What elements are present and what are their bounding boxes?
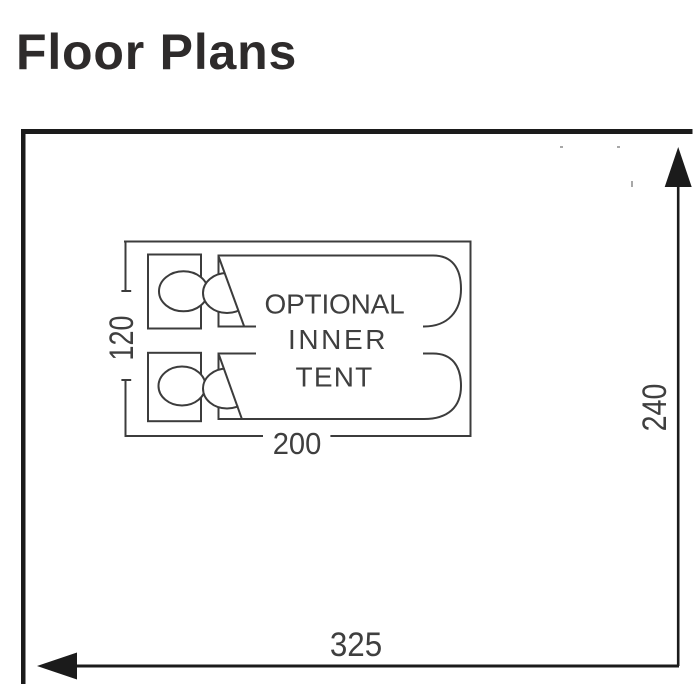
svg-text:Floor Plans: Floor Plans bbox=[16, 24, 297, 80]
svg-text:INNER: INNER bbox=[288, 324, 388, 355]
svg-text:TENT: TENT bbox=[296, 362, 374, 393]
svg-text:240: 240 bbox=[634, 384, 673, 432]
svg-text:OPTIONAL: OPTIONAL bbox=[265, 289, 405, 320]
svg-text:325: 325 bbox=[330, 625, 382, 664]
svg-text:120: 120 bbox=[102, 316, 141, 361]
svg-text:200: 200 bbox=[273, 427, 322, 461]
